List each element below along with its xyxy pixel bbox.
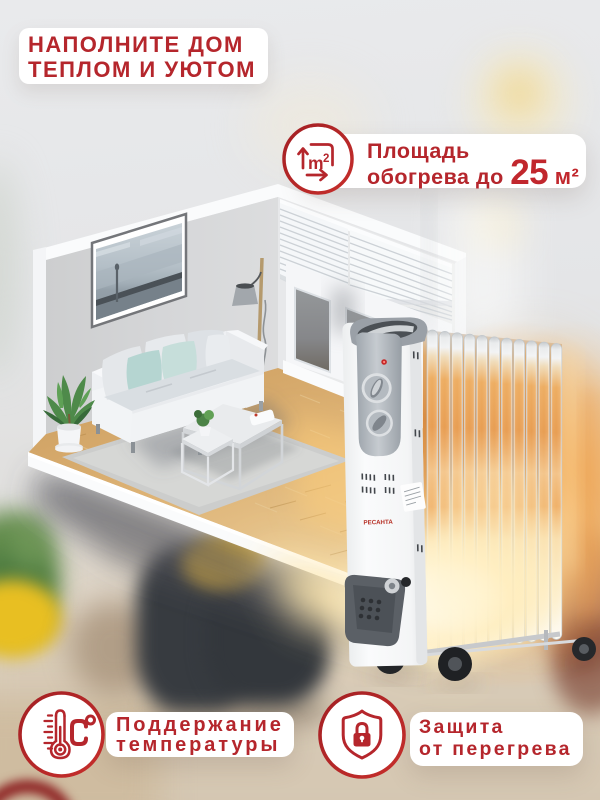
svg-text:2: 2 [323, 153, 329, 165]
svg-text:m: m [308, 153, 324, 173]
svg-text:РЕСАНТА: РЕСАНТА [363, 519, 393, 527]
